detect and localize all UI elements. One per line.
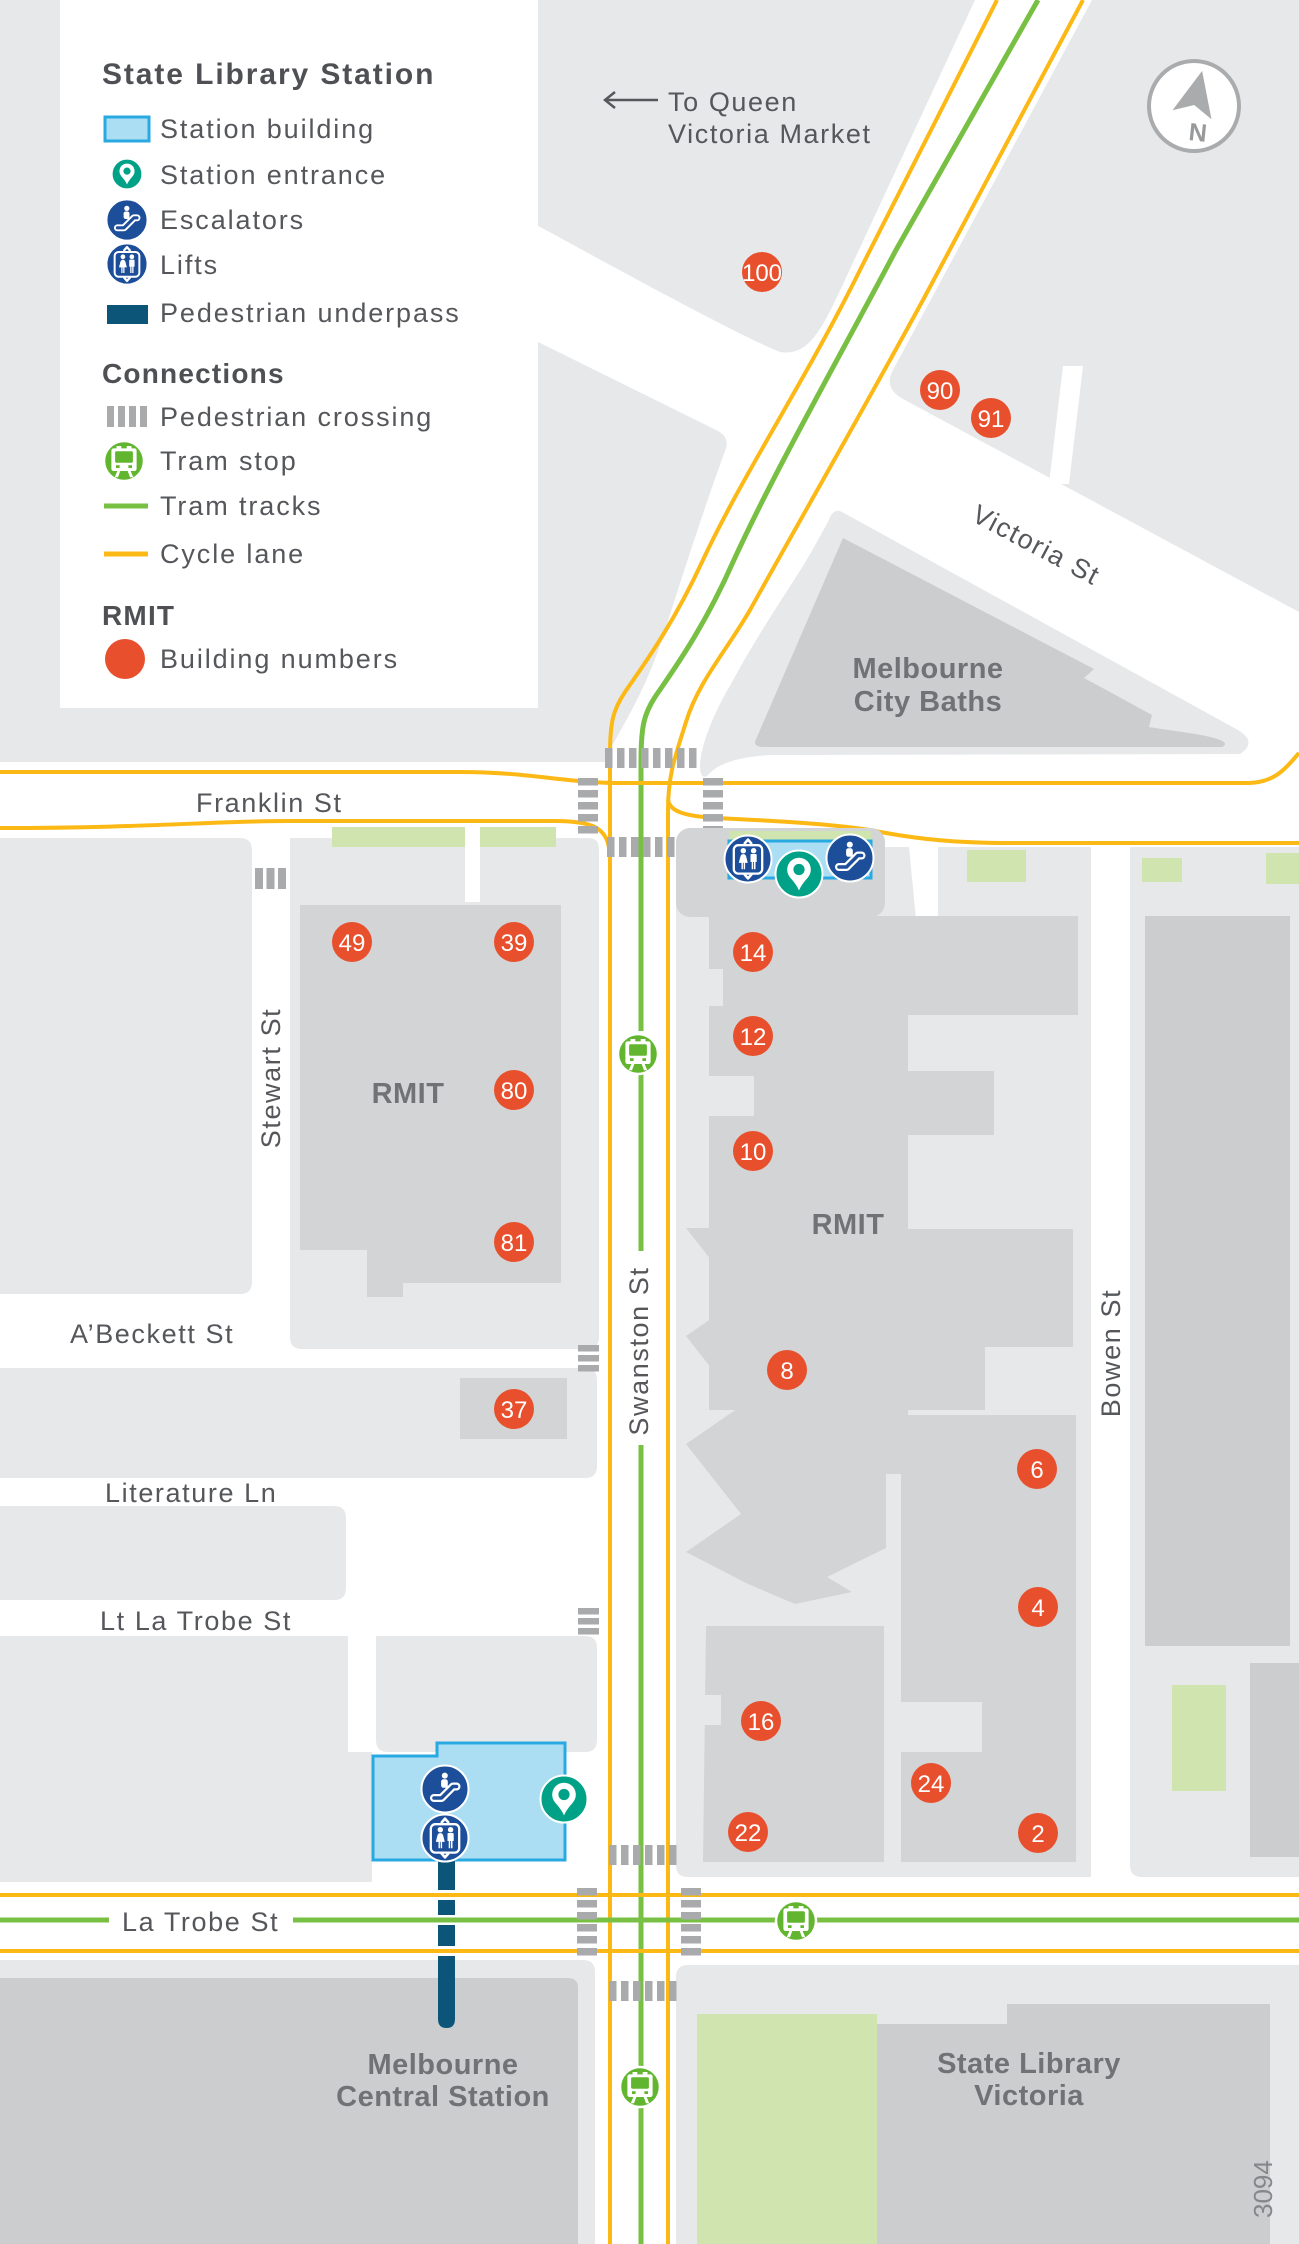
svg-text:Station building: Station building (160, 114, 375, 144)
svg-text:Victoria Market: Victoria Market (668, 119, 872, 149)
svg-text:City Baths: City Baths (854, 686, 1002, 718)
svg-text:8: 8 (780, 1358, 793, 1385)
svg-text:Stewart St: Stewart St (256, 1008, 286, 1149)
svg-text:90: 90 (927, 378, 954, 405)
svg-text:Lt La Trobe St: Lt La Trobe St (100, 1606, 292, 1636)
svg-text:Tram stop: Tram stop (160, 446, 298, 476)
svg-text:Pedestrian crossing: Pedestrian crossing (160, 402, 433, 432)
svg-text:12: 12 (740, 1024, 767, 1051)
svg-text:N: N (1187, 118, 1208, 148)
svg-text:81: 81 (501, 1230, 528, 1257)
svg-text:State Library Station: State Library Station (102, 58, 435, 91)
svg-text:La Trobe St: La Trobe St (122, 1907, 279, 1937)
svg-text:Franklin St: Franklin St (196, 788, 343, 818)
svg-text:Melbourne: Melbourne (367, 2049, 518, 2081)
svg-text:Swanston St: Swanston St (624, 1266, 654, 1435)
svg-text:3094: 3094 (1248, 2160, 1278, 2218)
svg-text:Building numbers: Building numbers (160, 644, 399, 674)
svg-text:RMIT: RMIT (812, 1209, 885, 1241)
svg-text:To Queen: To Queen (668, 87, 798, 117)
svg-text:Escalators: Escalators (160, 205, 305, 235)
svg-text:Victoria: Victoria (974, 2080, 1084, 2112)
svg-text:10: 10 (740, 1139, 767, 1166)
svg-text:Station entrance: Station entrance (160, 160, 387, 190)
svg-text:A’Beckett St: A’Beckett St (70, 1319, 234, 1349)
svg-text:RMIT: RMIT (372, 1078, 445, 1110)
svg-text:22: 22 (735, 1820, 762, 1847)
svg-text:Central Station: Central Station (336, 2081, 550, 2113)
svg-text:Melbourne: Melbourne (852, 653, 1003, 685)
svg-text:100: 100 (742, 260, 782, 287)
svg-text:4: 4 (1031, 1595, 1044, 1622)
svg-text:Lifts: Lifts (160, 250, 219, 280)
svg-text:6: 6 (1030, 1457, 1043, 1484)
svg-text:2: 2 (1031, 1821, 1044, 1848)
svg-text:Connections: Connections (102, 358, 285, 389)
svg-text:Pedestrian underpass: Pedestrian underpass (160, 298, 461, 328)
svg-text:49: 49 (339, 930, 366, 957)
svg-text:39: 39 (501, 930, 528, 957)
svg-text:91: 91 (978, 406, 1005, 433)
svg-text:16: 16 (748, 1709, 775, 1736)
svg-text:80: 80 (501, 1078, 528, 1105)
svg-text:Tram tracks: Tram tracks (160, 491, 322, 521)
svg-text:24: 24 (918, 1771, 945, 1798)
svg-text:14: 14 (740, 940, 767, 967)
svg-text:Cycle lane: Cycle lane (160, 539, 305, 569)
svg-text:State Library: State Library (937, 2048, 1121, 2080)
svg-text:37: 37 (501, 1397, 528, 1424)
svg-text:RMIT: RMIT (102, 600, 175, 631)
svg-text:Literature Ln: Literature Ln (105, 1478, 277, 1508)
svg-text:Bowen St: Bowen St (1096, 1289, 1126, 1417)
